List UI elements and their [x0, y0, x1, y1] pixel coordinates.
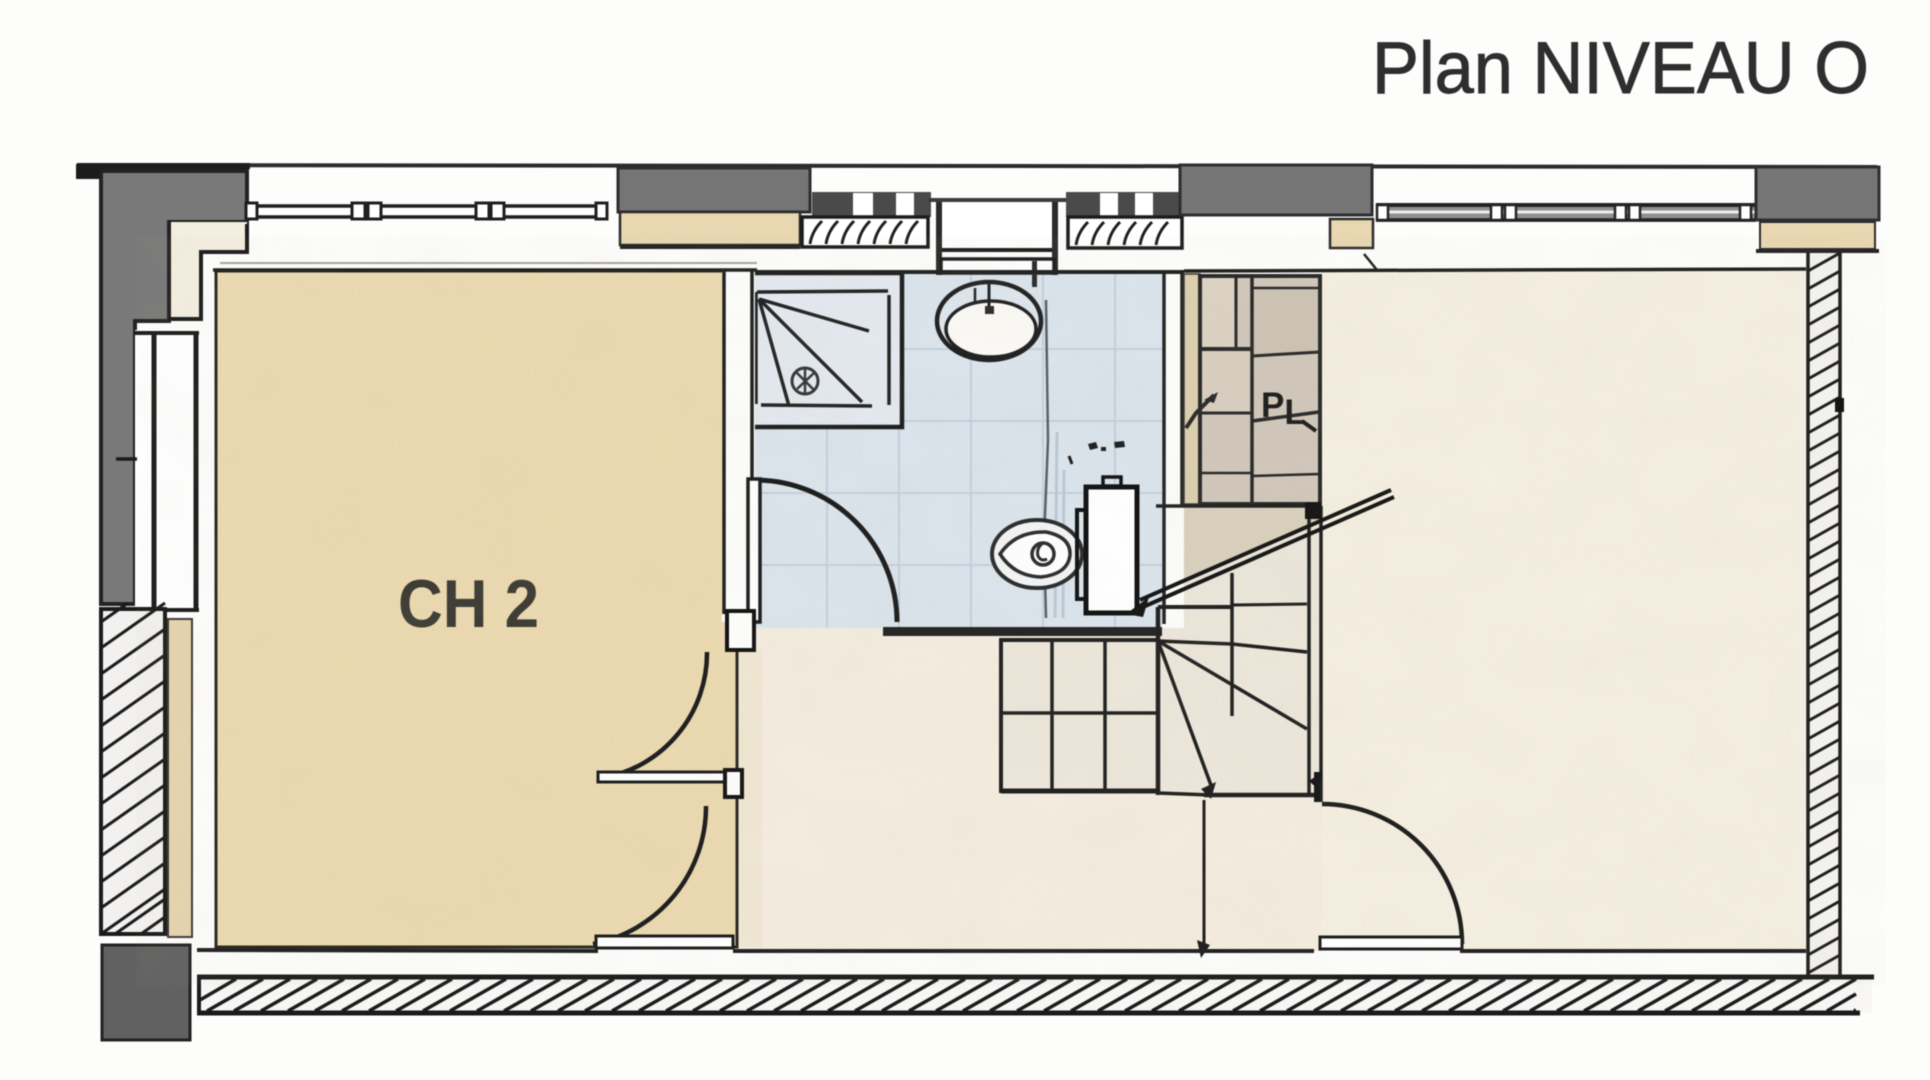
svg-text:Plan NIVEAU O: Plan NIVEAU O	[1372, 28, 1869, 109]
